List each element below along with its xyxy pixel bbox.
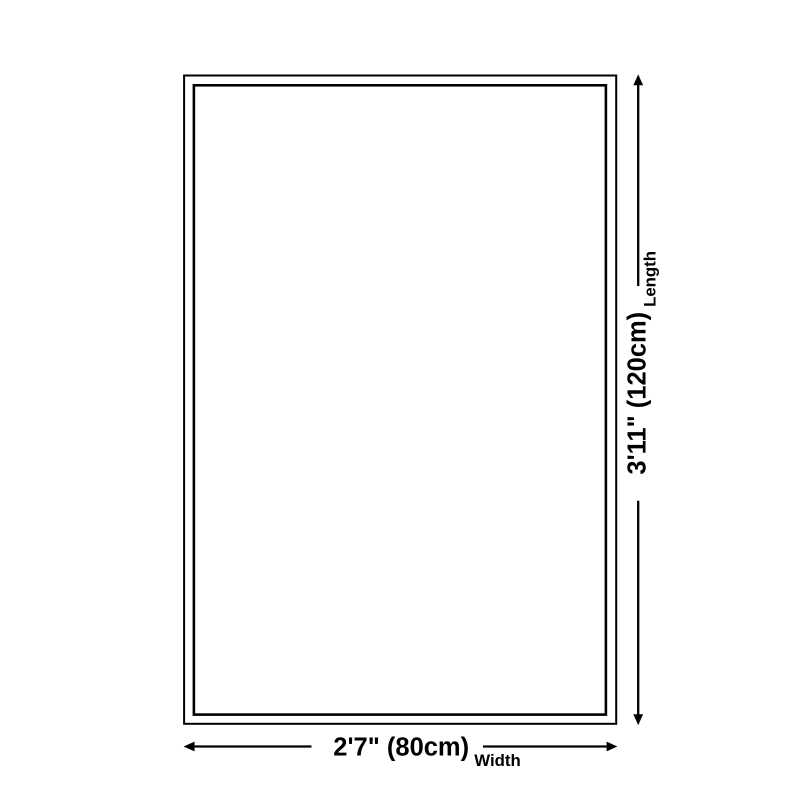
svg-text:2'7" (80cm): 2'7" (80cm) xyxy=(333,733,469,761)
svg-text:Length: Length xyxy=(640,251,659,307)
svg-text:Width: Width xyxy=(474,751,520,770)
svg-text:3'11" (120cm): 3'11" (120cm) xyxy=(623,312,651,475)
